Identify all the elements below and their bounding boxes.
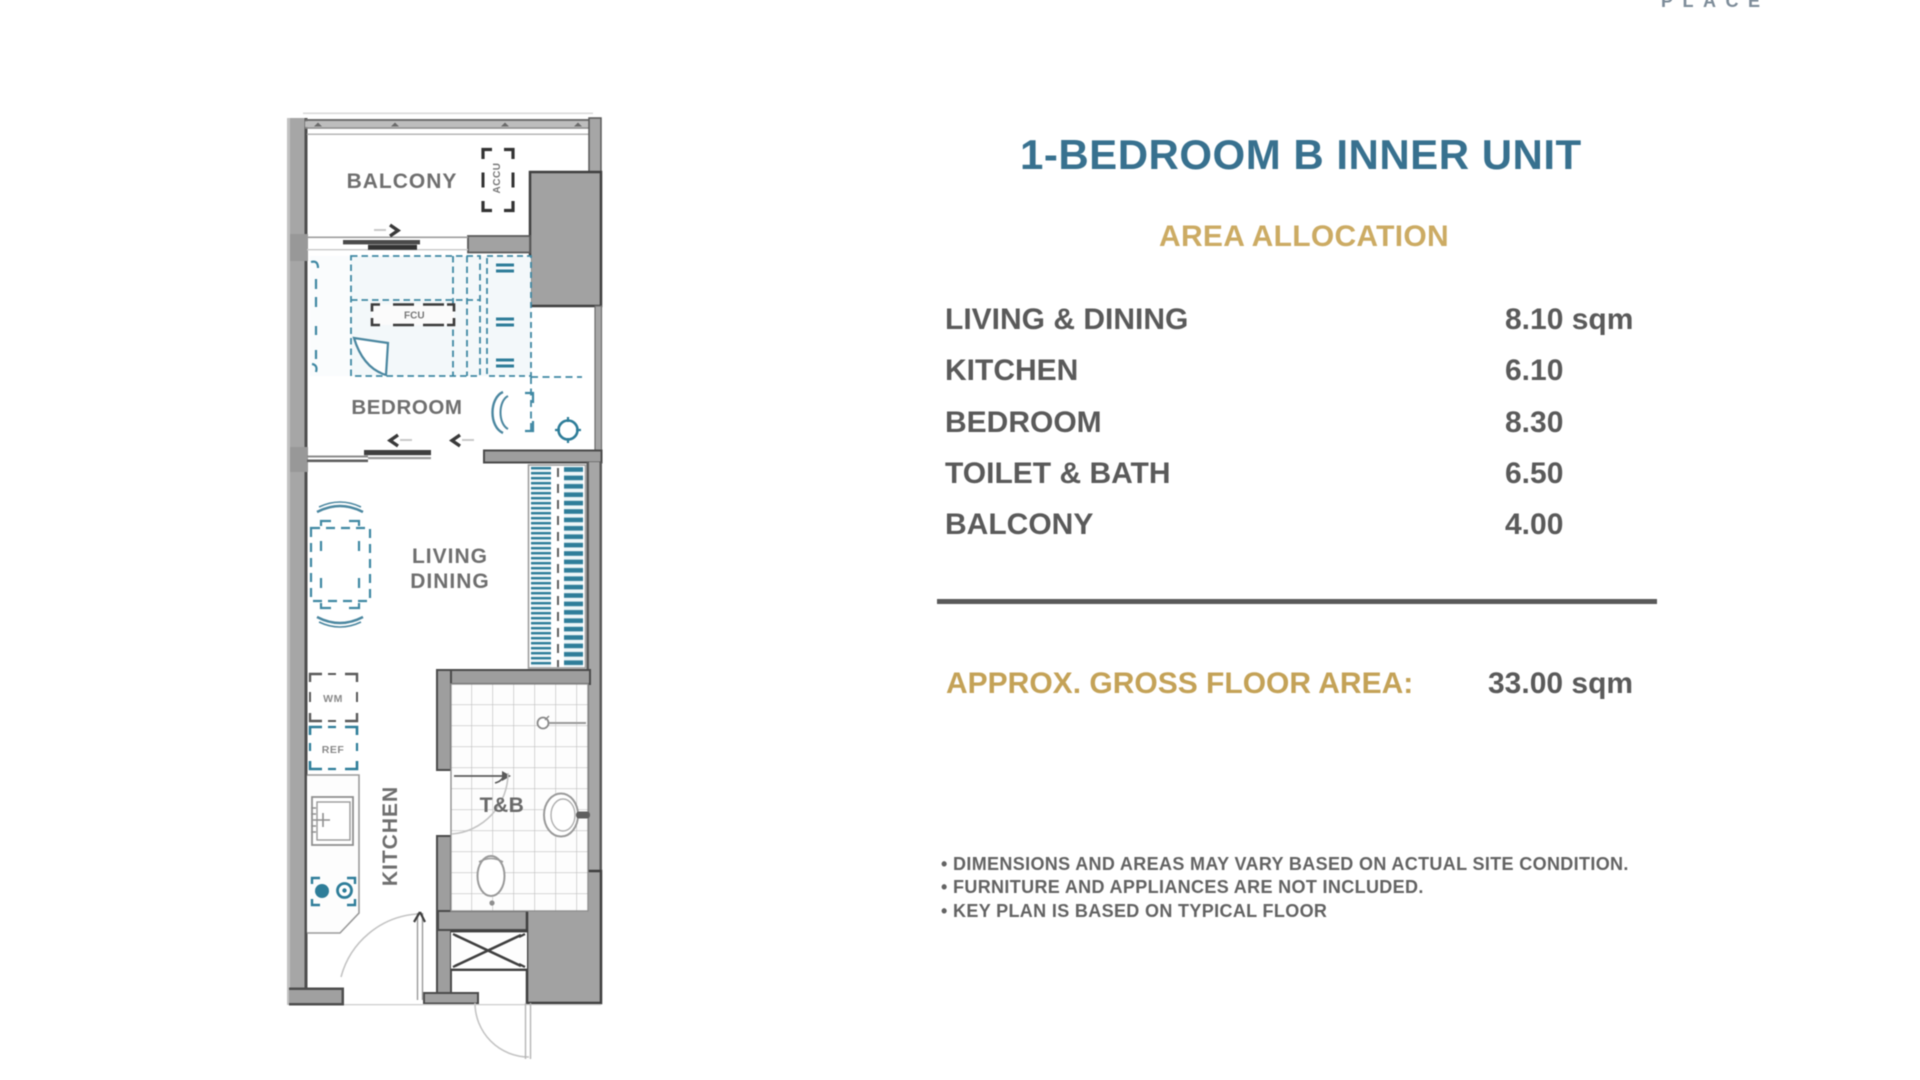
svg-text:FCU: FCU — [404, 311, 425, 322]
svg-text:WM: WM — [323, 693, 343, 705]
svg-text:BALCONY: BALCONY — [347, 170, 458, 193]
svg-text:BEDROOM: BEDROOM — [351, 396, 462, 419]
svg-text:ACCU: ACCU — [492, 163, 503, 194]
svg-text:LIVING: LIVING — [412, 545, 488, 568]
svg-text:DINING: DINING — [410, 570, 490, 593]
svg-text:REF: REF — [322, 744, 345, 756]
svg-text:KITCHEN: KITCHEN — [379, 786, 402, 886]
svg-text:T&B: T&B — [480, 794, 525, 817]
